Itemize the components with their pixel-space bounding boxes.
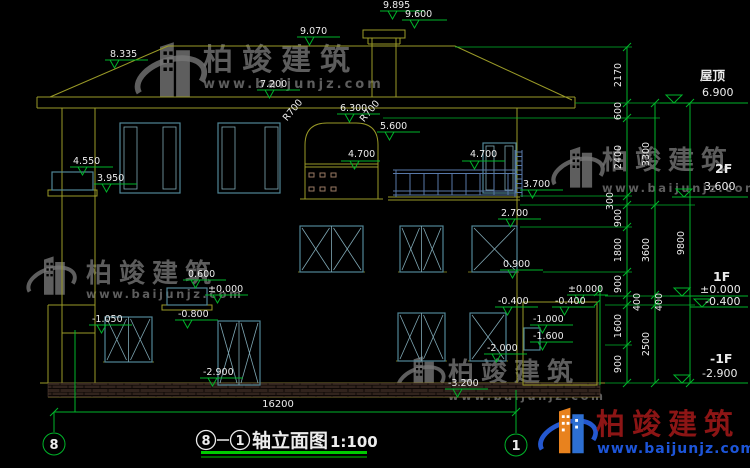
- svg-text:-2.900: -2.900: [203, 367, 234, 378]
- svg-text:-2.000: -2.000: [487, 343, 518, 354]
- dim-inner-5: 1800: [613, 238, 624, 262]
- dim-inner-3: 300: [605, 192, 616, 210]
- dim-inner-0: 2170: [613, 63, 624, 87]
- marker-chimney-cap: 9.600: [402, 9, 447, 28]
- window-1f-left: [300, 226, 363, 272]
- svg-text:2.700: 2.700: [501, 208, 528, 219]
- logo-brand: 柏竣建筑: [596, 407, 740, 441]
- marker-stair-top: -0.400: [552, 296, 595, 315]
- svg-text:屋顶: 屋顶: [700, 68, 726, 83]
- radius-label-left: R700: [281, 97, 305, 123]
- left-balcony-slab: [48, 190, 97, 196]
- svg-text:8: 8: [201, 434, 210, 449]
- dim-inner-1: 600: [613, 102, 624, 120]
- svg-text:4.550: 4.550: [73, 156, 100, 167]
- svg-text:-1.000: -1.000: [533, 314, 564, 325]
- dim-mid-2: 400: [654, 293, 665, 311]
- svg-text:1: 1: [511, 439, 520, 454]
- svg-text:6.300: 6.300: [340, 103, 367, 114]
- svg-text:0.600: 0.600: [188, 269, 215, 280]
- level-1f: 1F±0.000-0.400: [670, 269, 748, 308]
- dim-inner-7: 400: [632, 293, 643, 311]
- dim-inner-9: 900: [613, 355, 624, 373]
- svg-text:±0.000: ±0.000: [568, 284, 603, 295]
- svg-text:4.700: 4.700: [470, 149, 497, 160]
- title-scale: 1:100: [330, 433, 378, 451]
- svg-text:-0.800: -0.800: [178, 309, 209, 320]
- dim-inner-4: 900: [613, 209, 624, 227]
- svg-text:3.600: 3.600: [704, 180, 736, 193]
- svg-text:5.600: 5.600: [380, 121, 407, 132]
- svg-text:-3.200: -3.200: [448, 378, 479, 389]
- marker-left-eave: 8.335: [105, 49, 148, 68]
- svg-text:6.900: 6.900: [702, 86, 734, 99]
- svg-text:-1.050: -1.050: [92, 314, 123, 325]
- elevation-drawing: 柏竣建筑 www.baijunjz.com 柏竣建筑 www.baijunjz.…: [0, 0, 750, 468]
- dim-mid-0: 3300: [641, 142, 652, 166]
- level-roof: 屋顶6.900: [660, 68, 748, 103]
- overall-width-dim: 16200: [262, 399, 294, 410]
- logo-url: www.baijunjz.com: [597, 441, 750, 457]
- svg-text:-1F: -1F: [710, 351, 732, 366]
- window-basement-mid: [398, 313, 445, 361]
- svg-text:7.200: 7.200: [260, 79, 287, 90]
- dim-mid-3: 2500: [641, 332, 652, 356]
- shuttered-window-2f-mid: [218, 123, 280, 193]
- svg-text:4.700: 4.700: [348, 149, 375, 160]
- marker-arch-ledge: 4.700: [341, 149, 380, 169]
- title-text: 轴立面图: [252, 429, 328, 452]
- svg-text:1: 1: [235, 434, 244, 449]
- svg-text:9.070: 9.070: [300, 26, 327, 37]
- svg-text:-0.400: -0.400: [498, 296, 529, 307]
- svg-text:9.600: 9.600: [405, 9, 432, 20]
- marker-window-sill: 0.900: [500, 259, 543, 278]
- svg-text:-2.900: -2.900: [702, 367, 737, 380]
- svg-text:8.335: 8.335: [110, 49, 137, 60]
- svg-text:-1.600: -1.600: [533, 331, 564, 342]
- shuttered-window-2f-left: [120, 123, 180, 193]
- brand-logo: 柏竣建筑 www.baijunjz.com: [540, 407, 750, 457]
- svg-text:1F: 1F: [713, 269, 730, 284]
- dim-inner-6: 900: [613, 275, 624, 293]
- svg-text:0.900: 0.900: [503, 259, 530, 270]
- dim-inner-8: 1600: [613, 314, 624, 338]
- dim-mid-1: 3600: [641, 238, 652, 262]
- right-balcony-slab: [388, 197, 520, 200]
- marker-arch-spring: 5.600: [377, 121, 420, 140]
- svg-text:8: 8: [49, 438, 58, 453]
- svg-text:±0.000: ±0.000: [208, 284, 243, 295]
- brick-plinth: [48, 383, 600, 397]
- svg-text:-0.400: -0.400: [555, 296, 586, 307]
- svg-text:3.700: 3.700: [523, 179, 550, 190]
- floor-level-markers: 屋顶6.900 2F3.600 1F±0.000-0.400 -1F-2.900: [660, 68, 748, 383]
- marker-stair-door: -1.600: [530, 331, 573, 350]
- dim-outer-0: 9800: [676, 231, 687, 255]
- window-1f-mid: [400, 226, 443, 272]
- svg-text:3.950: 3.950: [97, 173, 124, 184]
- parapet-vents: [309, 173, 336, 191]
- level-b1: -1F-2.900: [670, 351, 748, 383]
- left-balcony-railing: [52, 172, 93, 190]
- watermark-brand: 柏竣建筑: [203, 43, 359, 78]
- marker-balcony-right-floor: 3.700: [520, 179, 563, 198]
- dim-inner-2: 2400: [613, 145, 624, 169]
- marker-window-top: 2.700: [498, 208, 541, 227]
- svg-text:-0.400: -0.400: [705, 295, 740, 308]
- marker-door-top: -0.800: [175, 309, 218, 328]
- drawing-title: 8 1 轴立面图 1:100: [197, 429, 378, 457]
- svg-text:2F: 2F: [715, 161, 732, 176]
